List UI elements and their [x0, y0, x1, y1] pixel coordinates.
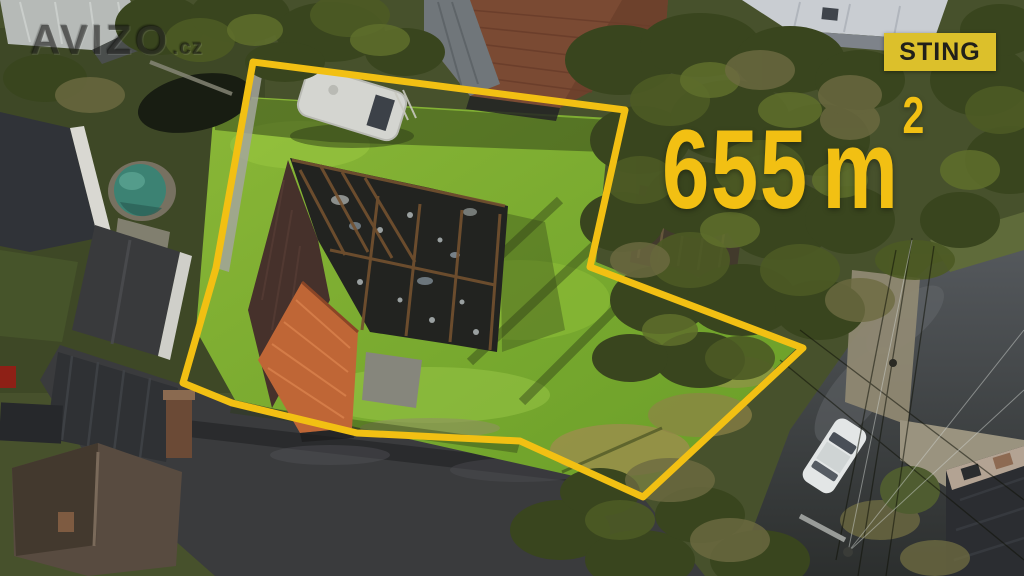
utility-pole	[843, 547, 853, 557]
dry-grass	[648, 393, 752, 437]
area-value: 655	[662, 107, 809, 232]
utility-pole	[889, 359, 897, 367]
watermark-brand: AVIZO	[30, 16, 170, 63]
area-exponent: 2	[903, 86, 926, 144]
trailer	[0, 402, 63, 443]
agency-badge: STING	[884, 33, 996, 71]
chimney	[58, 512, 74, 532]
red-truck-cab	[0, 366, 16, 388]
driveway-wear	[270, 445, 390, 465]
pool-highlight	[119, 172, 145, 190]
area-label: 655m2	[662, 114, 926, 226]
watermark-tld: .cz	[172, 36, 203, 59]
agency-badge-label: STING	[899, 38, 980, 67]
aerial-photo-background	[0, 0, 1024, 576]
chimney-cap	[163, 390, 195, 400]
tall-chimney	[166, 394, 192, 458]
concrete-pad	[362, 352, 422, 408]
area-unit: m	[822, 107, 899, 232]
real-estate-listing-photo: AVIZO.cz 655m2 STING	[0, 0, 1024, 576]
watermark-logo: AVIZO.cz	[30, 16, 203, 64]
skylight	[821, 7, 838, 21]
